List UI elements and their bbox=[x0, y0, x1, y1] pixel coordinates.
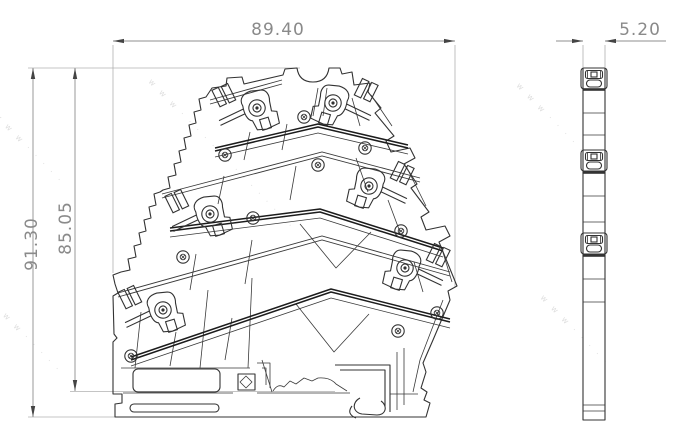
front-view bbox=[113, 67, 457, 418]
technical-drawing-page: w w w · · · · · · · · · · · · · · ·w w w… bbox=[0, 0, 680, 440]
side-cap bbox=[581, 150, 607, 171]
dimension-height-total-value: 91.30 bbox=[22, 217, 42, 271]
dimension-thickness: 5.20 bbox=[556, 20, 666, 43]
internal-dividers bbox=[135, 88, 452, 410]
screw-icon bbox=[392, 325, 404, 337]
screw-icon bbox=[431, 307, 443, 319]
screw-clamps bbox=[115, 67, 452, 344]
terminal-clamp bbox=[209, 72, 281, 142]
watermark-layer: w w w · · · · · · · · · · · · · · ·w w w… bbox=[0, 77, 611, 375]
watermark-text: w w w · · · · · bbox=[515, 81, 588, 156]
terminal-clamp bbox=[115, 274, 187, 344]
watermark-text: w w w · · · · · bbox=[539, 293, 612, 368]
screw-icon bbox=[298, 111, 310, 123]
dimension-height-upper-value: 85.05 bbox=[56, 201, 76, 255]
dimension-width: 89.40 bbox=[113, 20, 455, 43]
terminal-clamp bbox=[309, 67, 381, 137]
dimension-width-value: 89.40 bbox=[251, 20, 305, 40]
extension-lines bbox=[28, 45, 605, 417]
screw-icon bbox=[177, 251, 189, 263]
dimension-thickness-value: 5.20 bbox=[619, 20, 661, 40]
terminal-block-dimension-drawing: w w w · · · · · · · · · · · · · · ·w w w… bbox=[0, 0, 680, 440]
din-clip bbox=[335, 365, 390, 418]
side-view bbox=[581, 68, 607, 420]
screw-icon bbox=[312, 159, 324, 171]
din-foot bbox=[121, 363, 418, 418]
watermark-text: w w w · · · · · bbox=[0, 300, 63, 375]
dimension-height-total: 91.30 bbox=[22, 68, 42, 417]
watermark-text: w w w · · · · · · · · · · · · · · · bbox=[147, 77, 297, 231]
front-outline bbox=[113, 68, 457, 417]
side-cap bbox=[581, 233, 607, 254]
dimension-height-upper: 85.05 bbox=[56, 68, 77, 391]
side-cap bbox=[581, 68, 607, 89]
